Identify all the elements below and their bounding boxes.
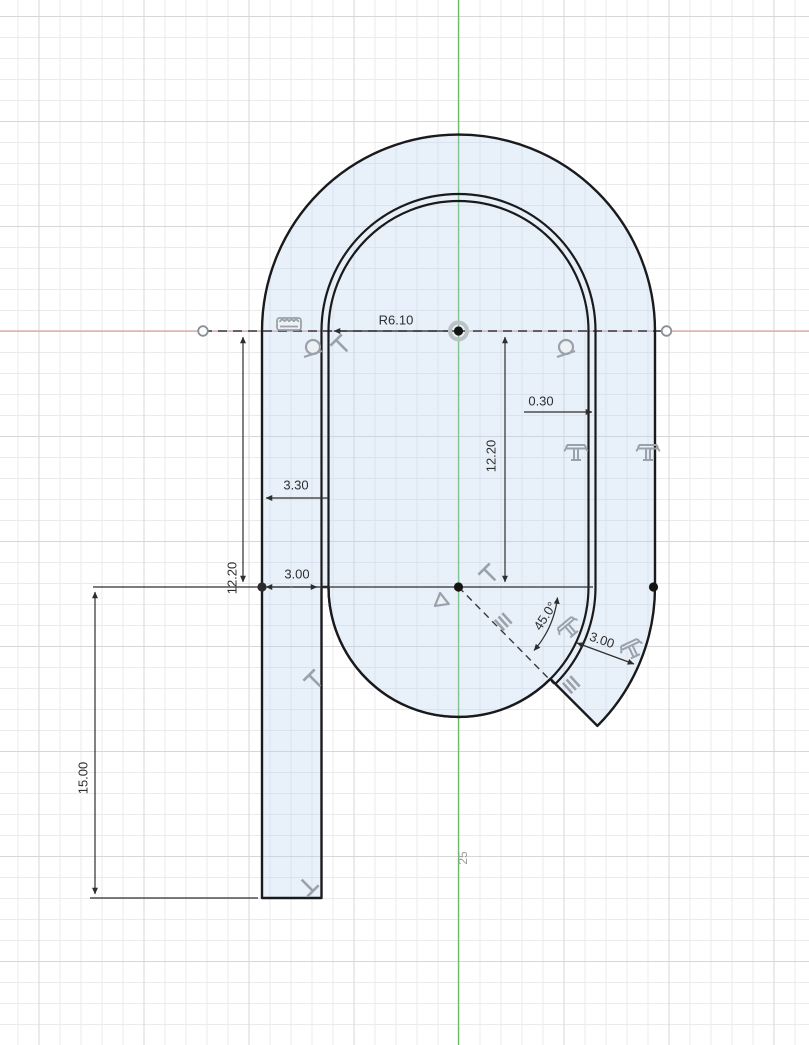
sketch-point-leg-top[interactable] xyxy=(257,582,266,591)
grid-scale-label: 25 xyxy=(456,851,470,864)
dim-leg-width-label[interactable]: 3.00 xyxy=(284,567,309,582)
ruler-constraint-icon[interactable] xyxy=(277,318,301,330)
dim-inner-radius-label[interactable]: R6.10 xyxy=(379,313,414,328)
dim-inner-height-right-label[interactable]: 12.20 xyxy=(484,440,499,473)
sketch-point-center-bottom[interactable] xyxy=(454,582,463,591)
sketch-geometry-layer xyxy=(0,0,809,1045)
sketch-point-right-tangent[interactable] xyxy=(649,582,658,591)
dim-wall-offset-label[interactable]: 0.30 xyxy=(528,394,553,409)
dim-outer-wall-left-label[interactable]: 3.30 xyxy=(283,478,308,493)
dim-inner-height-left-label[interactable]: 12.20 xyxy=(225,562,240,595)
sketch-canvas: R6.10 0.30 12.20 3.30 3.00 12.20 15.00 4… xyxy=(0,0,809,1045)
construction-endpoint-right[interactable] xyxy=(662,326,672,336)
construction-endpoint-left[interactable] xyxy=(198,326,208,336)
dim-leg-length-label[interactable]: 15.00 xyxy=(76,762,91,795)
